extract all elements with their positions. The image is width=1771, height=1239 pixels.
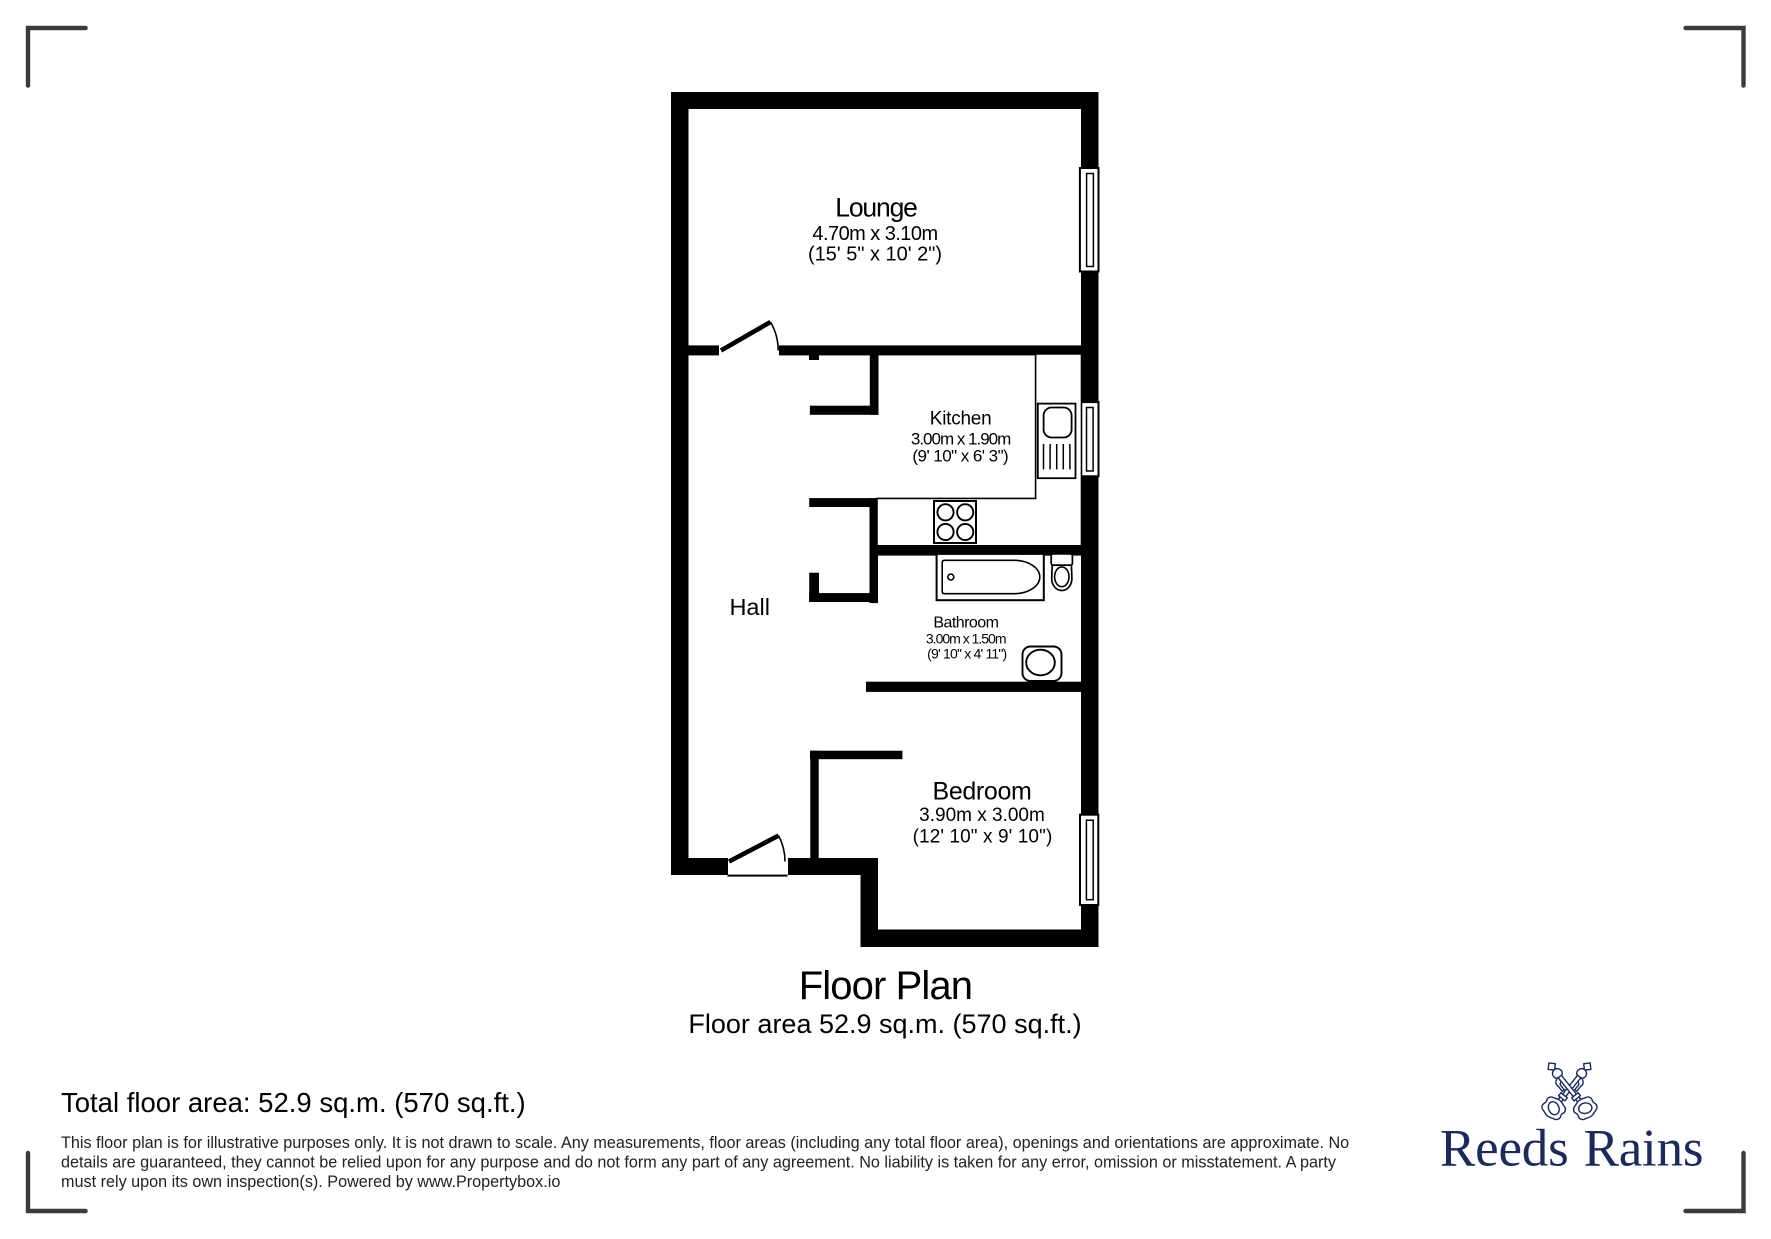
svg-text:Lounge: Lounge xyxy=(835,193,917,223)
svg-text:details are guaranteed, they c: details are guaranteed, they cannot be r… xyxy=(61,1154,1337,1172)
svg-text:Bathroom: Bathroom xyxy=(933,614,998,631)
svg-text:3.00m x 1.50m: 3.00m x 1.50m xyxy=(926,631,1006,647)
svg-text:Bedroom: Bedroom xyxy=(933,778,1032,806)
svg-text:3.90m x 3.00m: 3.90m x 3.00m xyxy=(919,805,1045,826)
svg-text:(9' 10" x 4' 11"): (9' 10" x 4' 11") xyxy=(927,646,1006,662)
svg-text:(9' 10" x 6' 3"): (9' 10" x 6' 3") xyxy=(912,446,1008,465)
svg-text:4.70m x 3.10m: 4.70m x 3.10m xyxy=(812,223,937,245)
svg-text:Hall: Hall xyxy=(729,594,769,620)
svg-text:must rely upon its own inspect: must rely upon its own inspection(s). Po… xyxy=(61,1173,560,1191)
svg-text:(12' 10" x 9' 10"): (12' 10" x 9' 10") xyxy=(913,827,1053,848)
svg-text:(15' 5" x 10' 2"): (15' 5" x 10' 2") xyxy=(808,244,942,266)
svg-text:This floor plan is for illustr: This floor plan is for illustrative purp… xyxy=(61,1134,1349,1152)
svg-text:Floor Plan: Floor Plan xyxy=(799,964,972,1008)
svg-text:Kitchen: Kitchen xyxy=(930,409,992,430)
svg-text:Reeds Rains: Reeds Rains xyxy=(1440,1120,1703,1178)
svg-text:Floor area 52.9 sq.m. (570 sq.: Floor area 52.9 sq.m. (570 sq.ft.) xyxy=(688,1009,1081,1039)
svg-text:Total floor area: 52.9 sq.m. (: Total floor area: 52.9 sq.m. (570 sq.ft.… xyxy=(61,1087,526,1118)
